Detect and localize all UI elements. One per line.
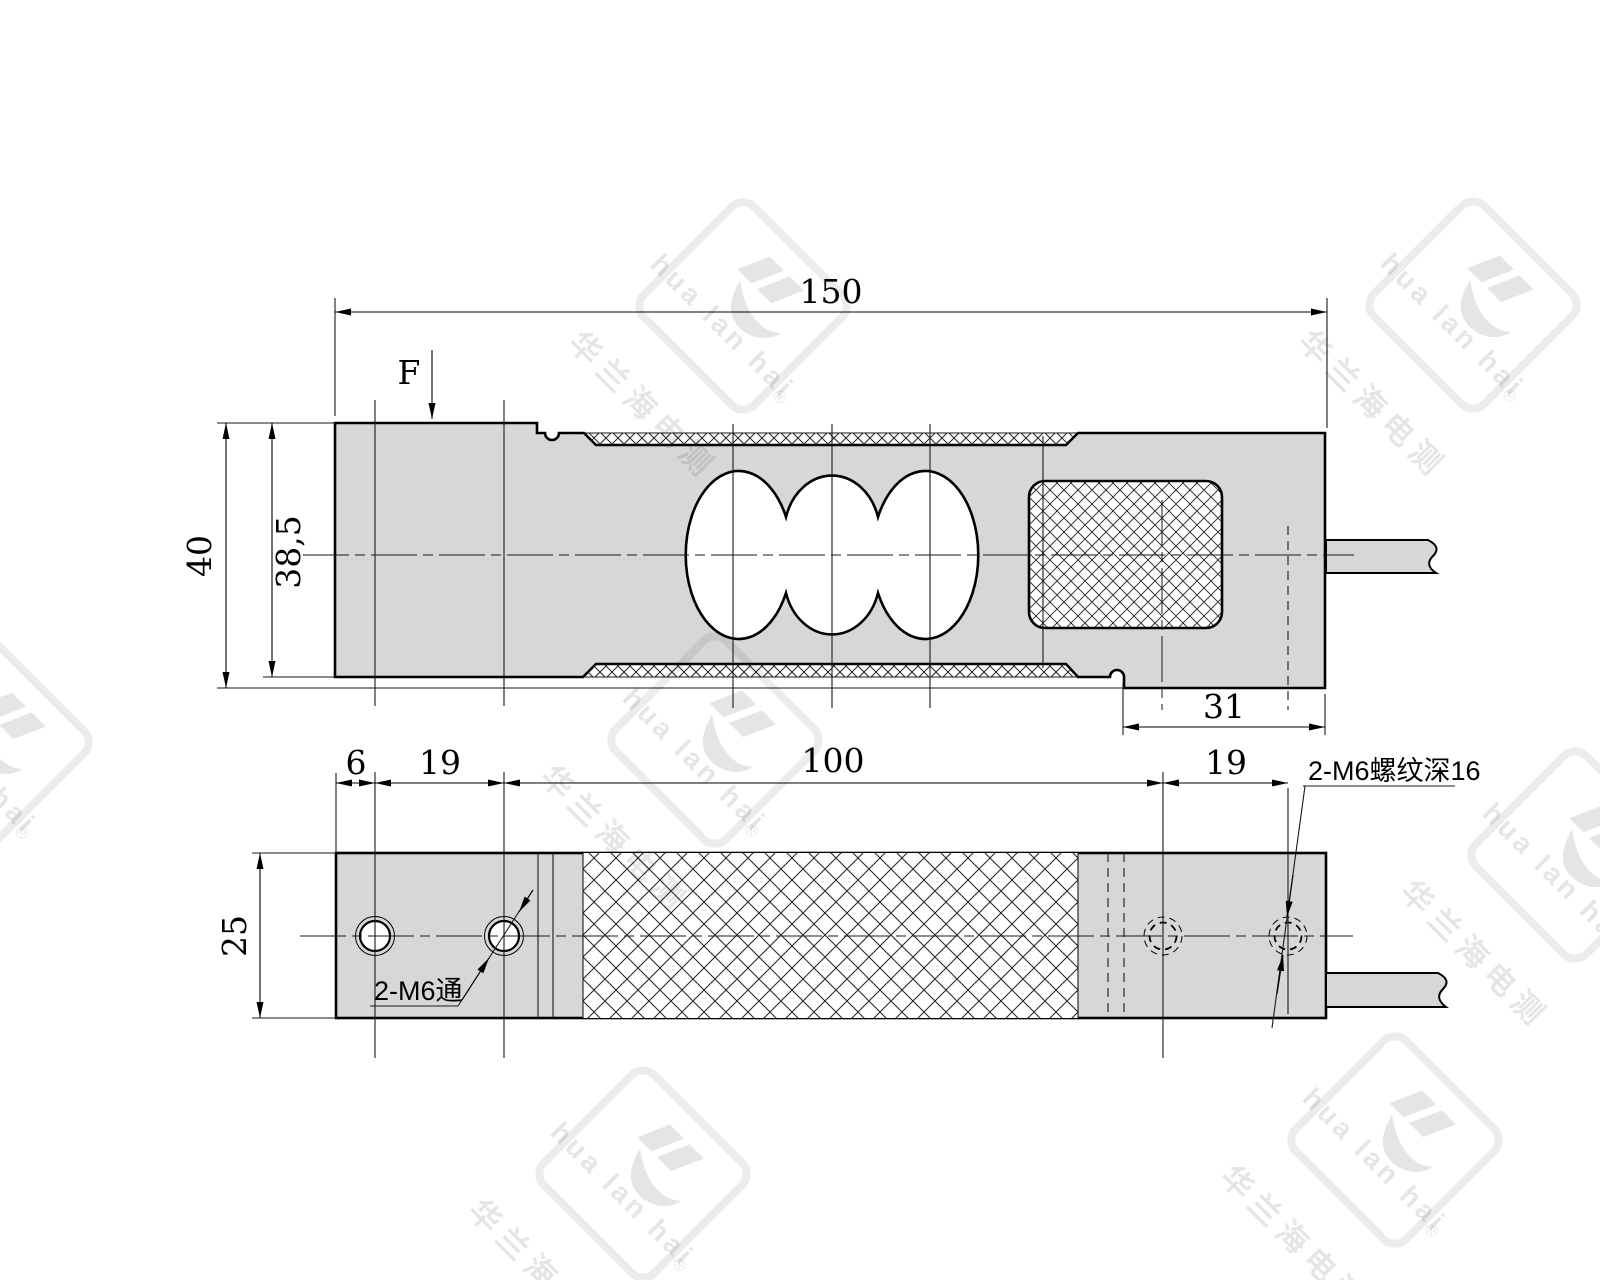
dim-mount-surface: 31 — [1123, 683, 1325, 735]
side-view: F 150 40 38,5 31 — [180, 272, 1437, 735]
dim-center-span-label: 100 — [802, 741, 865, 780]
plan-view: 6 19 100 19 25 2-M6通 2-M6螺纹深16 — [215, 741, 1481, 1058]
through-holes-label: 2-M6通 — [374, 976, 463, 1006]
watermark-layer — [0, 181, 1600, 1280]
bottom-knurl-band — [583, 664, 1078, 677]
dim-edge-to-hole-label: 6 — [346, 743, 367, 782]
drawing-canvas: hua lan hai ® 华兰海电测 — [0, 0, 1600, 1280]
cable-side-view — [1326, 540, 1437, 573]
dim-width-label: 25 — [215, 915, 254, 957]
threaded-holes-label: 2-M6螺纹深16 — [1308, 756, 1481, 786]
dim-total-length-label: 150 — [800, 272, 863, 311]
dim-mount-surface-label: 31 — [1203, 687, 1245, 726]
load-cell-engineering-drawing: hua lan hai ® 华兰海电测 — [0, 0, 1600, 1280]
force-annotation: F — [398, 350, 432, 419]
dim-body-height: 38,5 — [263, 423, 335, 677]
dim-body-height-label: 38,5 — [269, 515, 308, 588]
dim-chain-holes: 6 19 100 19 — [336, 741, 1288, 783]
force-label: F — [398, 353, 421, 392]
dim-left-spacing-label: 19 — [419, 743, 461, 782]
dim-right-spacing-label: 19 — [1205, 743, 1247, 782]
dim-total-length: 150 — [335, 272, 1327, 428]
cable-plan-view — [1326, 973, 1447, 1007]
dim-total-height-label: 40 — [180, 535, 219, 577]
